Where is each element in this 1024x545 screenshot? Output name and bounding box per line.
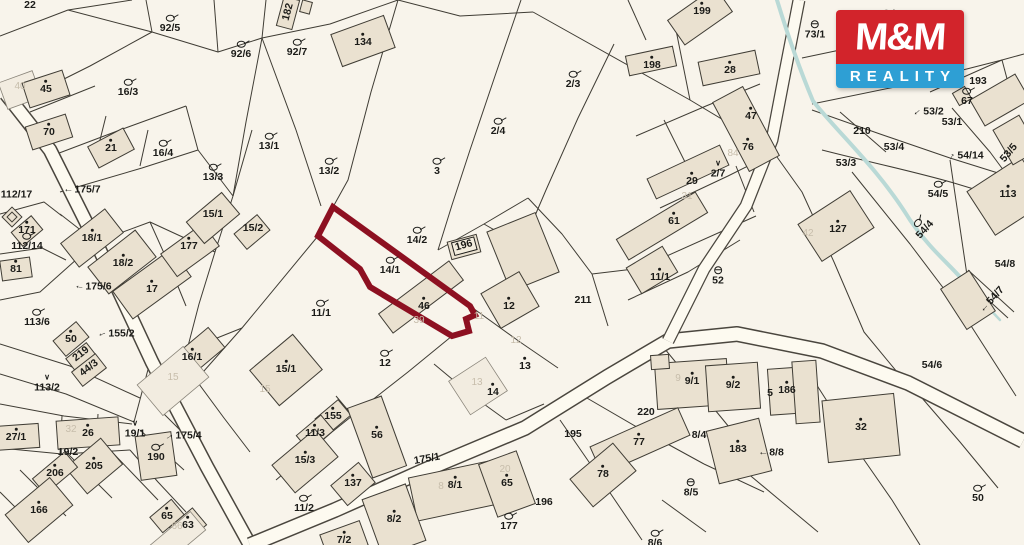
parcel-label-12: 12 <box>379 350 391 369</box>
faint-parcel-label-8: 8 <box>438 482 444 492</box>
parcel-label-16-1: 16/1 <box>182 348 202 363</box>
faint-parcel-label-15: 15 <box>259 385 270 395</box>
parcel-label-11-1: 11/1 <box>650 268 670 283</box>
parcel-label-134: 134 <box>354 33 372 48</box>
parcel-label-70: 70 <box>43 123 55 138</box>
parcel-label-46: 46 <box>418 297 430 312</box>
garden-symbol <box>568 71 577 78</box>
parcel-label-45: 45 <box>40 80 52 95</box>
parcel-label-14-2: 14/2 <box>407 227 427 246</box>
garden-symbol <box>293 39 302 46</box>
parcel-label-8-8: →8/8 <box>758 448 784 459</box>
parcel-label-17: 17 <box>146 280 158 295</box>
parcel-label-16-4: 16/4 <box>153 140 173 159</box>
garden-symbol <box>325 158 334 165</box>
parcel-label-53-2: →53/2 <box>912 107 943 118</box>
garden-symbol <box>386 257 395 264</box>
logo-reality-bar: REALITY <box>836 64 964 88</box>
parcel-label-113-2: ∨113/2 <box>34 373 60 393</box>
garden-symbol <box>299 495 308 502</box>
parcel-label-166: 166 <box>30 501 48 516</box>
faint-parcel-label-11: 11 <box>474 312 484 322</box>
parcel-label-196: 196 <box>451 236 477 255</box>
garden-symbol <box>493 118 502 125</box>
pointer-arrow-icon: → <box>945 150 959 164</box>
parcel-label-182: 182 <box>281 2 296 22</box>
parcel-label-196: 196 <box>535 497 553 508</box>
pointer-arrow-icon: → <box>96 328 109 341</box>
logo-mm-text: M&M <box>854 16 946 59</box>
faint-parcel-label-13: 13 <box>471 378 482 388</box>
parcel-label-177: 177 <box>500 513 518 532</box>
garden-symbol <box>974 485 983 492</box>
parcel-label-18-2: 18/2 <box>113 254 133 269</box>
parcel-label-13: 13 <box>519 357 531 372</box>
parcel-label-47: 47 <box>745 107 757 122</box>
parcel-label-183: 183 <box>729 440 747 455</box>
garden-symbol <box>505 513 514 520</box>
parcel-label-8-2: 8/2 <box>387 510 402 525</box>
parcel-label-177: 177 <box>180 237 198 252</box>
parcel-label-7-2: 7/2 <box>337 531 352 545</box>
parcel-label-113: 113 <box>1000 185 1017 200</box>
cadastral-map[interactable]: 2292/592/692/71341824516/3702116/413/113… <box>0 0 1024 545</box>
parcel-label-26: 26 <box>82 424 94 439</box>
parcel-label-190: 190 <box>147 444 165 463</box>
parcel-label-15-3: 15/3 <box>295 451 315 466</box>
parcel-label-29: 29 <box>686 172 698 187</box>
parcel-label-220: 220 <box>637 407 655 418</box>
parcel-label-127: 127 <box>829 220 847 235</box>
logo-reality-text: REALITY <box>844 68 956 85</box>
parcel-label-92-7: 92/7 <box>287 39 307 58</box>
parcel-label-9-2: 9/2 <box>726 376 741 391</box>
garden-symbol <box>934 181 943 188</box>
circle-bar-symbol <box>714 266 722 274</box>
parcel-label-195: 195 <box>564 429 582 440</box>
parcel-label-61: 61 <box>668 212 680 227</box>
parcel-label-155-2: →155/2 <box>97 329 134 340</box>
parcel-label-175-4: →175/4 <box>164 431 201 442</box>
parcel-label-54-14: →54/14 <box>946 151 983 162</box>
parcel-label-155: 155 <box>324 407 342 422</box>
pointer-arrow-icon: → <box>910 105 924 119</box>
parcel-label-54-6: 54/6 <box>922 360 942 371</box>
mm-reality-logo: M&M REALITY <box>836 10 964 88</box>
parcel-label-15-1: 15/1 <box>276 360 296 375</box>
parcel-label-54-4: 54/4 <box>908 213 935 241</box>
faint-parcel-label-84: 84 <box>727 149 738 159</box>
parcel-label-112-17: →112/17 <box>0 190 32 201</box>
garden-symbol <box>159 140 168 147</box>
parcel-label-8-1: 8/1 <box>448 476 463 491</box>
parcel-label-14: 14 <box>487 383 499 398</box>
parcel-label-193: 193 <box>969 76 987 87</box>
garden-symbol <box>166 15 175 22</box>
check-symbol: ∨ <box>711 159 726 167</box>
parcel-label-211: 211 <box>575 295 592 306</box>
parcel-label-28: 28 <box>724 61 736 76</box>
parcel-label-13-2: 13/2 <box>319 158 339 177</box>
parcel-label-3: 3 <box>433 158 442 177</box>
parcel-label-13-3: 13/3 <box>203 164 223 183</box>
faint-parcel-label-15: 15 <box>167 373 178 383</box>
faint-parcel-label-40: 40 <box>14 82 25 92</box>
parcel-label-12: 12 <box>503 297 515 312</box>
parcel-label-53-5: 53/5 <box>998 142 1019 164</box>
parcel-label-205: 205 <box>85 457 103 472</box>
garden-symbol <box>650 530 659 537</box>
check-symbol: ∨ <box>34 373 60 381</box>
garden-symbol <box>963 88 972 95</box>
parcel-label-11-2: 11/2 <box>294 495 314 514</box>
parcel-label-77: 77 <box>633 433 645 448</box>
faint-parcel-label-31: 31 <box>681 192 692 202</box>
garden-symbol <box>381 350 390 357</box>
parcel-label-15-1: 15/1 <box>203 209 223 220</box>
pointer-arrow-icon: → <box>74 282 86 294</box>
parcel-label-63: 63 <box>182 516 194 531</box>
parcel-label-92-6: 92/6 <box>231 41 251 60</box>
garden-symbol <box>413 227 422 234</box>
parcel-label-2-3: 2/3 <box>566 71 581 90</box>
parcel-label-2-4: 2/4 <box>491 118 506 137</box>
parcel-label-53-3: 53/3 <box>836 158 856 169</box>
parcel-label-52: 52 <box>712 266 724 286</box>
parcel-label-199: 199 <box>693 2 711 17</box>
parcel-label-67: 67 <box>961 88 973 107</box>
parcel-label-56: 56 <box>371 426 383 441</box>
garden-symbol <box>124 79 133 86</box>
faint-parcel-label-42: 42 <box>802 229 813 239</box>
parcel-label-19-2: 19/2 <box>58 447 78 458</box>
pointer-arrow-icon: → <box>758 449 768 459</box>
parcel-label-16-3: 16/3 <box>118 79 138 98</box>
parcel-label-78: 78 <box>597 465 609 480</box>
parcel-label-50: 50 <box>972 485 984 504</box>
garden-symbol <box>32 309 41 316</box>
parcel-label-76: 76 <box>742 138 754 153</box>
garden-symbol <box>152 444 161 451</box>
parcel-label-175-7: →175/7 <box>63 185 100 196</box>
parcel-label-5: 5 <box>767 388 773 399</box>
parcel-label-32: 32 <box>855 418 867 433</box>
garden-symbol <box>237 41 246 48</box>
parcel-label-50: 50 <box>65 330 77 345</box>
parcel-label-198: 198 <box>643 56 661 71</box>
garden-symbol <box>433 158 442 165</box>
garden-symbol <box>316 300 325 307</box>
garden-symbol <box>22 233 31 240</box>
check-symbol: ∨ <box>125 419 145 427</box>
faint-parcel-label-9: 9 <box>675 374 681 384</box>
pointer-arrow-icon: → <box>63 186 73 196</box>
parcel-label-15-2: 15/2 <box>243 223 263 234</box>
parcel-label-22: 22 <box>24 0 36 10</box>
faint-parcel-label-39: 39 <box>413 316 424 326</box>
parcel-label-53-1: 53/1 <box>942 117 962 128</box>
parcel-label-175-1: 175/1 <box>413 452 441 467</box>
parcel-label-53-4: 53/4 <box>884 142 904 153</box>
parcel-label-2-7: ∨2/7 <box>711 159 726 179</box>
parcel-label-65: 65 <box>501 474 513 489</box>
circle-bar-symbol <box>687 478 695 486</box>
parcel-label-11-1: 11/1 <box>311 300 331 319</box>
parcel-label-210: 210 <box>853 126 871 137</box>
parcel-label-21: 21 <box>105 139 117 154</box>
parcel-label-73-1: 73/1 <box>805 20 825 40</box>
faint-parcel-label-20: 20 <box>499 465 510 475</box>
parcel-label-92-5: 92/5 <box>160 15 180 34</box>
parcel-label-54-8: 54/8 <box>995 259 1015 270</box>
parcel-label-186: 186 <box>778 381 796 396</box>
faint-parcel-label-12: 12 <box>510 336 521 346</box>
parcel-label-112-14: 112/14 <box>11 233 43 252</box>
parcel-label-175-6: →175/6 <box>74 282 111 293</box>
parcel-label-54-5: 54/5 <box>928 181 948 200</box>
parcel-label-8-6: 8/6 <box>648 530 663 545</box>
parcel-label-65: 65 <box>161 507 173 522</box>
parcel-label-8-5: 8/5 <box>684 478 699 498</box>
parcel-label-19-1: ∨19/1 <box>125 419 145 439</box>
faint-parcel-label-66: 66 <box>171 522 182 532</box>
parcel-label-14-1: 14/1 <box>380 257 400 276</box>
parcel-label-9-1: 9/1 <box>685 372 700 387</box>
parcel-label-18-1: 18/1 <box>82 229 102 244</box>
faint-parcel-label-32: 32 <box>65 425 76 435</box>
garden-symbol <box>265 133 274 140</box>
parcel-label-11-3: 11/3 <box>305 424 325 439</box>
circle-bar-symbol <box>811 20 819 28</box>
parcel-label-206: 206 <box>46 464 64 479</box>
parcel-label-81: 81 <box>10 260 22 275</box>
parcel-label-27-1: 27/1 <box>6 428 26 443</box>
logo-top: M&M <box>836 10 964 64</box>
parcel-label-113-6: 113/6 <box>24 309 50 328</box>
parcel-label-8-4: 8/4 <box>692 430 707 441</box>
parcel-label-54-7: →54/7 <box>977 285 1006 316</box>
parcel-label-137: 137 <box>344 474 362 489</box>
pointer-arrow-icon: → <box>163 430 177 444</box>
garden-symbol <box>209 164 218 171</box>
parcel-label-13-1: 13/1 <box>259 133 279 152</box>
